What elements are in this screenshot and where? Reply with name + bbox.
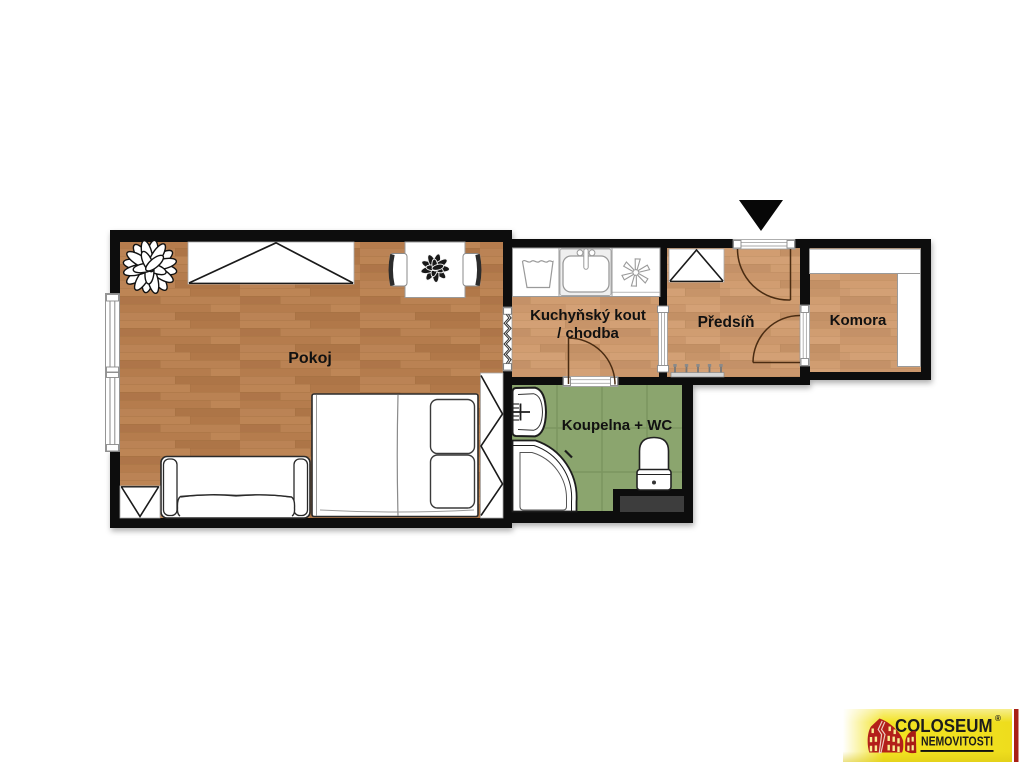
svg-text:®: ®	[995, 714, 1001, 723]
svg-text:Komora: Komora	[830, 312, 887, 329]
svg-text:Předsíň: Předsíň	[698, 314, 755, 331]
svg-text:NEMOVITOSTI: NEMOVITOSTI	[921, 735, 993, 749]
svg-text:Koupelna + WC: Koupelna + WC	[562, 417, 673, 434]
svg-text:/ chodba: / chodba	[557, 325, 619, 342]
svg-text:Pokoj: Pokoj	[288, 350, 332, 367]
svg-text:Kuchyňský kout: Kuchyňský kout	[530, 307, 646, 324]
